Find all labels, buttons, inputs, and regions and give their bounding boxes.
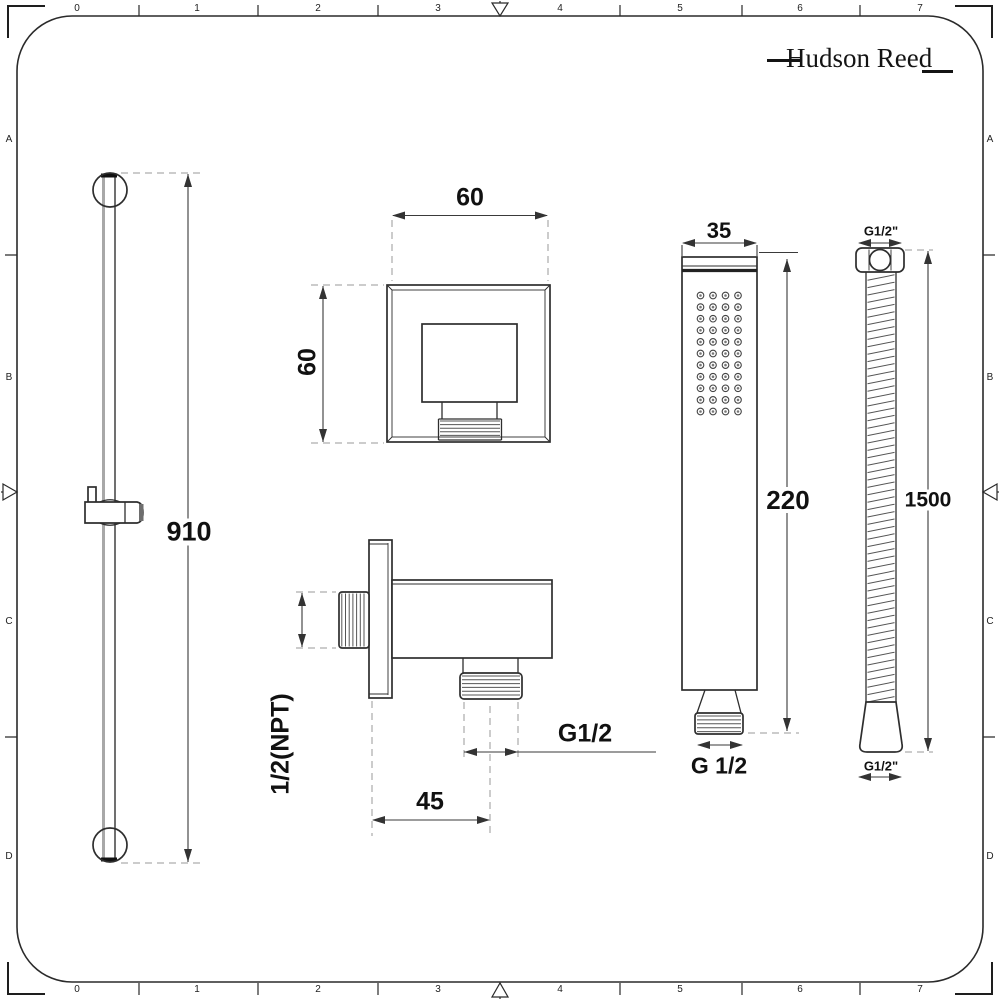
ruler-top-7: 7 — [917, 4, 923, 14]
outlet-height-label: 60 — [296, 346, 321, 378]
hose-spiral-hatch — [868, 275, 895, 702]
slide-rail-drawing — [85, 173, 144, 862]
ruler-bottom-4: 4 — [557, 985, 563, 995]
outlet-thread-label: G1/2 — [556, 722, 614, 747]
outlet-offset-label: 45 — [414, 790, 446, 815]
rail-slider-bracket — [85, 487, 144, 525]
ruler-top-3: 3 — [435, 4, 441, 14]
ruler-right-c: C — [986, 617, 993, 627]
ruler-top-2: 2 — [315, 4, 321, 14]
hose-thread-bottom-label: G1/2" — [862, 760, 900, 773]
ruler-right-d: D — [986, 852, 993, 862]
ruler-top-4: 4 — [557, 4, 563, 14]
ruler-left-c: C — [5, 617, 12, 627]
line-art — [0, 0, 1000, 1000]
outlet-width-label: 60 — [454, 186, 486, 211]
inlet-thread-hatch — [342, 594, 364, 647]
center-marks — [1, 1, 999, 999]
ruler-bottom-7: 7 — [917, 985, 923, 995]
ruler-bottom-1: 1 — [194, 985, 200, 995]
rail-top-end — [93, 173, 127, 207]
ruler-right-b: B — [987, 373, 994, 383]
outlet-inlet-thread-label: 1/2(NPT) — [269, 691, 294, 796]
ruler-ticks — [5, 5, 995, 995]
logo-right-line — [922, 70, 953, 73]
hose-drawing — [856, 248, 904, 752]
handset-thread-label: G 1/2 — [689, 755, 749, 778]
handset-width-label: 35 — [705, 220, 733, 242]
wall-outlet-front-drawing — [387, 285, 550, 442]
hose-thread-top-label: G1/2" — [862, 225, 900, 238]
handset-length-label: 220 — [764, 487, 811, 513]
ruler-top-5: 5 — [677, 4, 683, 14]
ruler-bottom-6: 6 — [797, 985, 803, 995]
ruler-right-a: A — [987, 135, 994, 145]
ruler-bottom-3: 3 — [435, 985, 441, 995]
ruler-left-a: A — [6, 135, 13, 145]
handset-drawing — [682, 257, 757, 734]
dimension-arrowheads — [184, 174, 932, 862]
technical-drawing-canvas: 910 60 60 1/2(NPT) 45 G1/2 35 220 G 1/2 … — [0, 0, 1000, 1000]
ruler-top-1: 1 — [194, 4, 200, 14]
hose-top-nut — [856, 248, 904, 272]
ruler-bottom-0: 0 — [74, 985, 80, 995]
ruler-bottom-5: 5 — [677, 985, 683, 995]
ruler-top-0: 0 — [74, 4, 80, 14]
ruler-left-b: B — [6, 373, 13, 383]
rail-bottom-end — [93, 828, 127, 862]
ruler-bottom-2: 2 — [315, 985, 321, 995]
wall-outlet-side-drawing — [339, 540, 552, 699]
brand-logo: Hudson Reed — [786, 45, 932, 72]
hose-length-label: 1500 — [903, 490, 954, 511]
drawing-frame — [1, 1, 999, 999]
ruler-left-d: D — [5, 852, 12, 862]
dimension-lines — [121, 173, 933, 863]
ruler-top-6: 6 — [797, 4, 803, 14]
hose-bottom-fitting — [860, 702, 902, 752]
rail-length-label: 910 — [164, 519, 213, 546]
